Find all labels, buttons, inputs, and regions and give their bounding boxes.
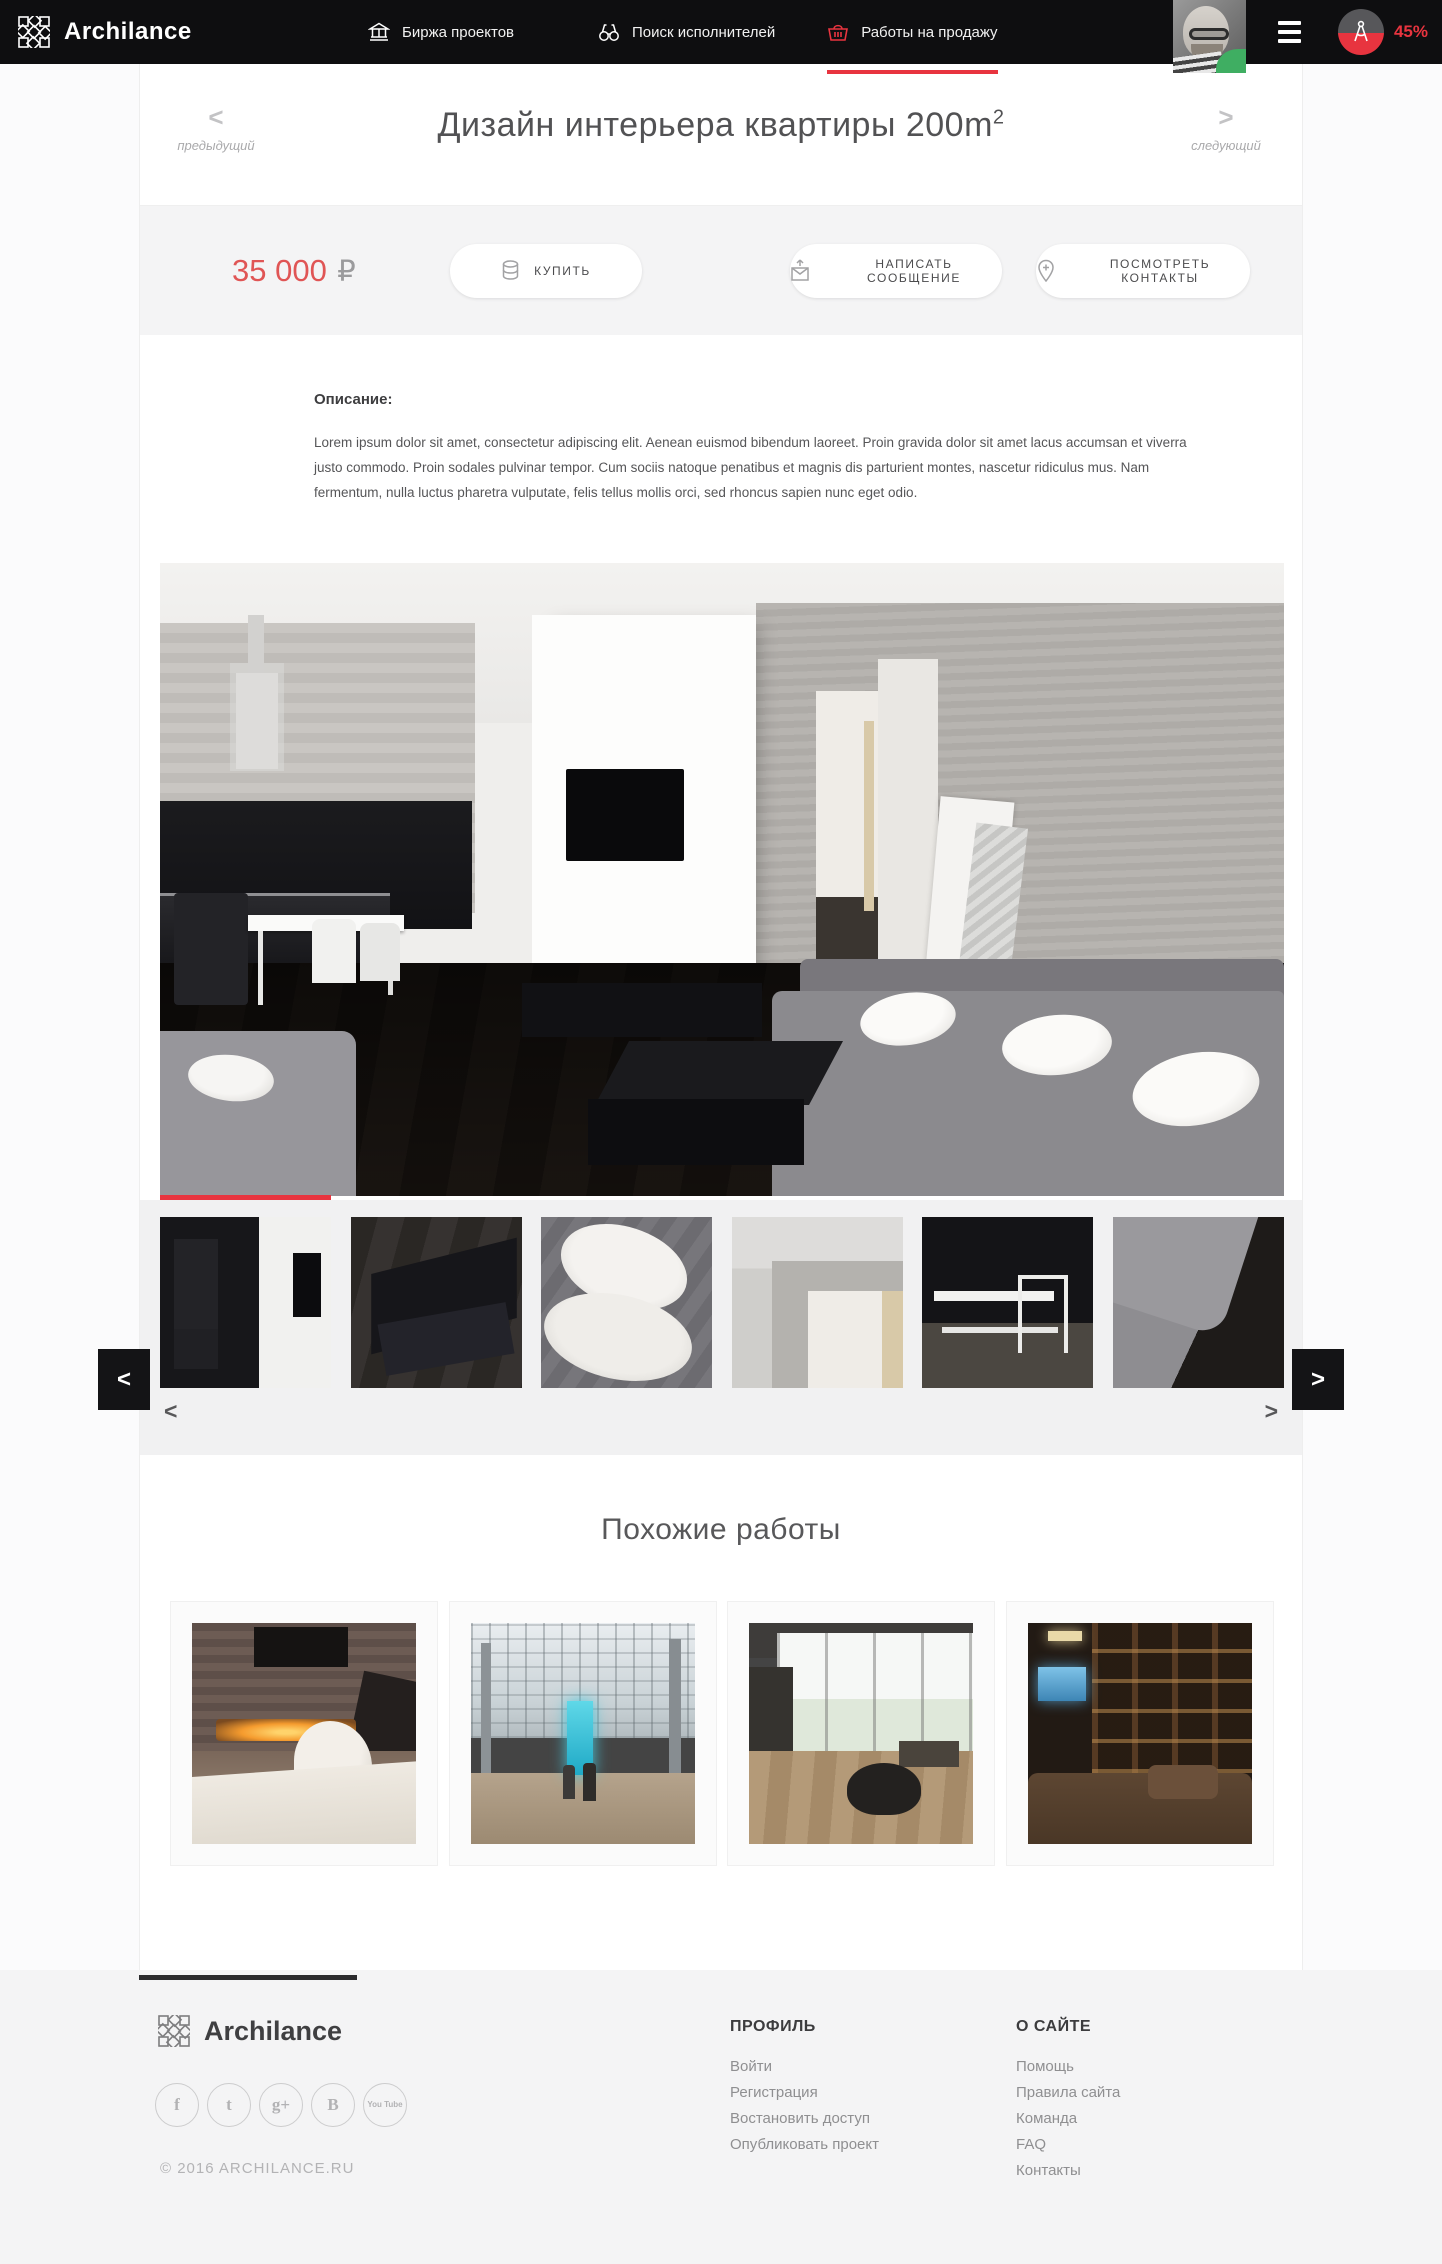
nav-item-label: Поиск исполнителей: [632, 24, 775, 41]
brand-logo[interactable]: Archilance: [18, 0, 192, 64]
nav-item-find-performers[interactable]: Поиск исполнителей: [598, 0, 775, 64]
youtube-icon[interactable]: You Tube: [363, 2083, 407, 2127]
content-card: < предыдущий Дизайн интерьера квартиры 2…: [139, 64, 1303, 1970]
gallery-progress-indicator: [160, 1195, 331, 1200]
coins-icon: [501, 260, 520, 282]
profile-progress-badge[interactable]: [1338, 9, 1384, 55]
thumbnails-prev-button[interactable]: <: [164, 1398, 177, 1425]
page: Archilance Биржа проектов: [0, 0, 1442, 2264]
footer-link-register[interactable]: Регистрация: [730, 2084, 879, 2101]
main-photo[interactable]: [160, 563, 1284, 1196]
footer-link-restore-access[interactable]: Востановить доступ: [730, 2110, 879, 2127]
footer-link-rules[interactable]: Правила сайта: [1016, 2084, 1120, 2101]
hamburger-menu-icon[interactable]: [1278, 21, 1301, 43]
description-text: Lorem ipsum dolor sit amet, consectetur …: [314, 430, 1194, 505]
nav-item-label: Работы на продажу: [861, 24, 997, 41]
thumbnail-6-sofa-corner[interactable]: [1113, 1217, 1284, 1388]
footer-column-title: ПРОФИЛЬ: [730, 2018, 879, 2036]
price-amount: 35 000: [232, 253, 327, 288]
gallery-section: < >: [140, 563, 1302, 1200]
footer-link-faq[interactable]: FAQ: [1016, 2136, 1120, 2153]
next-work-label: следующий: [1166, 138, 1286, 153]
footer: Archilance f t g+ B You Tube © 2016 ARCH…: [0, 1970, 1442, 2264]
view-contacts-button[interactable]: ПОСМОТРЕТЬ КОНТАКТЫ: [1036, 244, 1250, 298]
write-message-label: НАПИСАТЬ СООБЩЕНИЕ: [826, 257, 1002, 285]
twitter-icon[interactable]: t: [207, 2083, 251, 2127]
archilance-footer-logo-icon: [158, 2015, 190, 2047]
similar-work-4-home-library[interactable]: [1006, 1601, 1274, 1866]
binoculars-icon: [598, 22, 620, 42]
facebook-icon[interactable]: f: [155, 2083, 199, 2127]
top-navbar: Archilance Биржа проектов: [0, 0, 1442, 64]
location-pin-icon: [1036, 259, 1056, 283]
similar-works-section: Похожие работы: [140, 1455, 1302, 1970]
buy-button-label: КУПИТЬ: [534, 264, 591, 278]
thumbnails: [160, 1217, 1284, 1388]
footer-brand-name: Archilance: [204, 2016, 342, 2047]
social-links: f t g+ B You Tube: [155, 2083, 407, 2127]
thumbnail-3-pillows[interactable]: [541, 1217, 712, 1388]
bank-icon: [368, 22, 390, 42]
similar-work-3-living-room[interactable]: [727, 1601, 995, 1866]
chevron-right-icon: >: [1166, 104, 1286, 130]
footer-column-title: О САЙТЕ: [1016, 2018, 1120, 2036]
similar-works-row: [170, 1601, 1274, 1866]
thumbnail-2-coffee-table[interactable]: [351, 1217, 522, 1388]
google-plus-icon[interactable]: g+: [259, 2083, 303, 2127]
send-message-icon: [790, 259, 812, 283]
footer-column-profile: ПРОФИЛЬ Войти Регистрация Востановить до…: [730, 2018, 879, 2162]
footer-accent-bar: [139, 1975, 357, 1980]
user-avatar[interactable]: [1173, 0, 1246, 73]
basket-icon: [827, 22, 849, 42]
footer-link-publish-project[interactable]: Опубликовать проект: [730, 2136, 879, 2153]
thumbnail-5-dining-table[interactable]: [922, 1217, 1093, 1388]
footer-brand[interactable]: Archilance: [158, 2015, 342, 2047]
gallery-next-button[interactable]: >: [1292, 1349, 1344, 1410]
nav-item-label: Биржа проектов: [402, 24, 514, 41]
compass-icon: [1351, 20, 1371, 44]
vk-icon[interactable]: B: [311, 2083, 355, 2127]
thumbnail-4-doorway[interactable]: [732, 1217, 903, 1388]
similar-work-1-fireplace-interior[interactable]: [170, 1601, 438, 1866]
thumbnail-1-kitchen-cabinets[interactable]: [160, 1217, 331, 1388]
buy-button[interactable]: КУПИТЬ: [450, 244, 642, 298]
similar-works-heading: Похожие работы: [140, 1513, 1302, 1547]
footer-link-help[interactable]: Помощь: [1016, 2058, 1120, 2075]
thumbnails-next-button[interactable]: >: [1265, 1398, 1278, 1425]
price-currency: ₽: [337, 256, 355, 288]
nav-item-project-exchange[interactable]: Биржа проектов: [368, 0, 514, 64]
view-contacts-label: ПОСМОТРЕТЬ КОНТАКТЫ: [1070, 257, 1250, 285]
page-title: Дизайн интерьера квартиры 200m2: [140, 106, 1302, 145]
similar-work-2-mall-atrium[interactable]: [449, 1601, 717, 1866]
copyright: © 2016 ARCHILANCE.RU: [160, 2160, 354, 2177]
description-section: Описание: Lorem ipsum dolor sit amet, co…: [140, 335, 1302, 563]
archilance-logo-icon: [18, 16, 50, 48]
footer-link-team[interactable]: Команда: [1016, 2110, 1120, 2127]
nav-item-works-for-sale[interactable]: Работы на продажу: [827, 0, 997, 64]
next-work-button[interactable]: > следующий: [1166, 104, 1286, 153]
price: 35 000 ₽: [232, 253, 442, 289]
write-message-button[interactable]: НАПИСАТЬ СООБЩЕНИЕ: [790, 244, 1002, 298]
thumbnail-strip: < >: [140, 1200, 1302, 1455]
footer-link-contacts[interactable]: Контакты: [1016, 2162, 1120, 2179]
brand-name: Archilance: [64, 18, 192, 46]
gallery-prev-button[interactable]: <: [98, 1349, 150, 1410]
description-heading: Описание:: [314, 391, 1302, 408]
title-section: < предыдущий Дизайн интерьера квартиры 2…: [140, 64, 1302, 206]
active-nav-underline: [827, 70, 997, 74]
profile-progress-value: 45%: [1394, 22, 1428, 42]
price-bar: 35 000 ₽ КУПИТЬ: [140, 206, 1302, 335]
main-menu: Биржа проектов Поиск исполнителей: [368, 0, 998, 64]
footer-column-about: О САЙТЕ Помощь Правила сайта Команда FAQ…: [1016, 2018, 1120, 2188]
footer-link-login[interactable]: Войти: [730, 2058, 879, 2075]
